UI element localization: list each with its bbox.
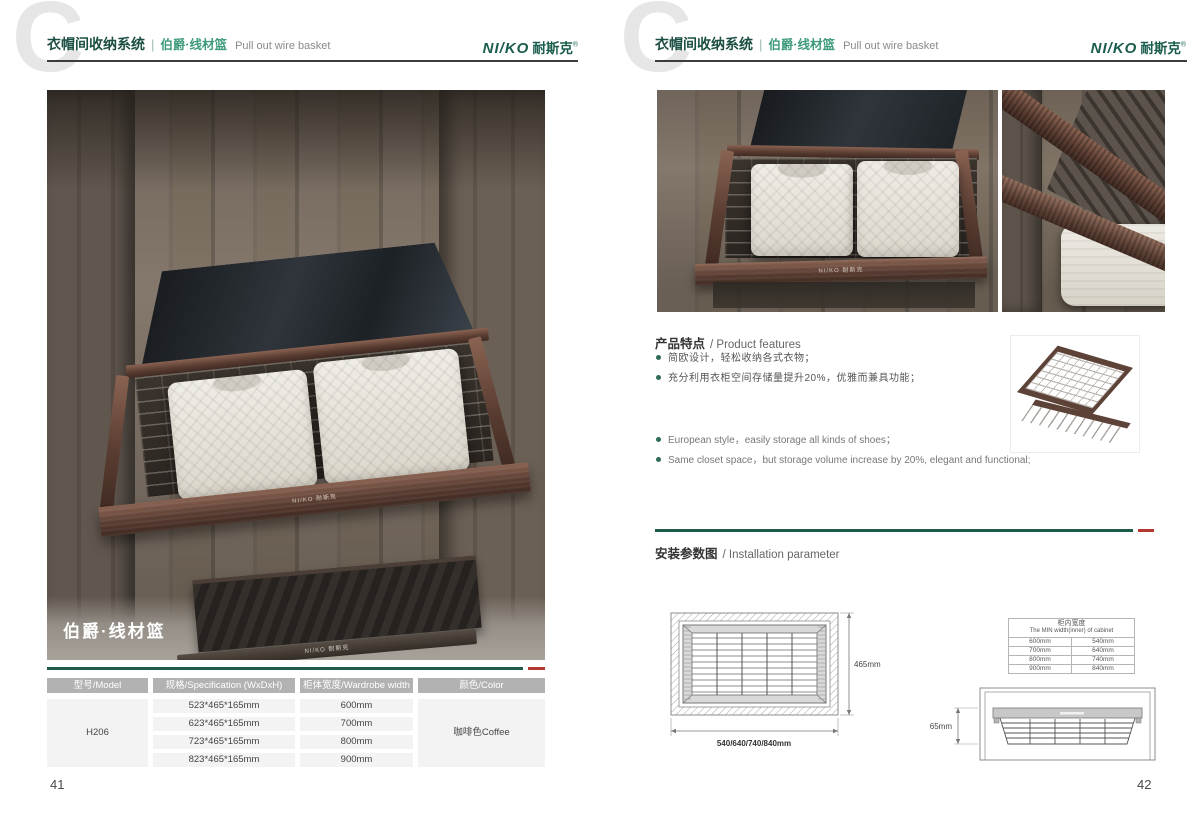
product-name-en: Pull out wire basket (235, 40, 330, 52)
col-header-width: 柜体宽度/Wardrobe width (300, 678, 413, 693)
depth-dimension-label: 465mm (854, 660, 881, 669)
installation-title-en: / Installation parameter (723, 549, 840, 561)
col-header-spec: 规格/Specification (WxDxH) (153, 678, 295, 693)
separator-green (47, 667, 523, 670)
table-title-zh: 柜内宽度 (1009, 620, 1134, 628)
shadow-overlay (47, 90, 545, 190)
registered-mark: ® (573, 42, 578, 49)
spec-table: 型号/Model 规格/Specification (WxDxH) 柜体宽度/W… (47, 678, 545, 767)
bullet-icon (656, 457, 661, 462)
title-divider: | (151, 37, 154, 52)
feature-item: 简欧设计，轻松收纳各式衣物； (655, 352, 995, 366)
separator-red (1138, 529, 1154, 532)
table-row: 700mm 640mm (1009, 646, 1135, 655)
wardrobe-photo: NI/KO 耐斯克 NI/KO 耐斯克 伯爵·线材篮 (47, 90, 545, 660)
page-title: 衣帽间收纳系统 (47, 36, 145, 52)
table-title-en: The MIN width(inner) of cabinet (1009, 628, 1134, 635)
installation-title: 安装参数图/ Installation parameter (655, 543, 840, 563)
separator-red (528, 667, 545, 670)
inner-width-cell: 640mm (1072, 646, 1135, 655)
page-number-right: 42 (1137, 777, 1151, 792)
col-header-model: 型号/Model (47, 678, 148, 693)
spec-cell: 523*465*165mm (153, 699, 295, 713)
header-right: 衣帽间收纳系统|伯爵·线材篮Pull out wire basket (655, 34, 938, 60)
installation-title-zh: 安装参数图 (655, 547, 718, 561)
features-title-en: / Product features (710, 339, 801, 351)
folded-sweater (857, 161, 959, 257)
min-width-table-header: 柜内宽度 The MIN width(inner) of cabinet (1009, 619, 1135, 638)
feature-item: 充分利用衣柜空间存储量提升20%，优雅而兼具功能； (655, 372, 995, 386)
model-cell: H206 (47, 699, 148, 767)
page-title: 衣帽间收纳系统 (655, 36, 753, 52)
width-cell: 900mm (300, 753, 413, 767)
basket-rim-left (99, 375, 129, 514)
features-title-zh: 产品特点 (655, 337, 705, 351)
inner-width-cell: 840mm (1072, 664, 1135, 673)
table-row: 900mm 840mm (1009, 664, 1135, 673)
spec-cell: 723*465*165mm (153, 735, 295, 749)
width-cell: 700mm (300, 717, 413, 731)
registered-mark: ® (1181, 42, 1186, 49)
logo-cn: 耐斯克 (1140, 41, 1181, 56)
brand-logo: NI/KO耐斯克® (460, 37, 578, 58)
feature-text: Same closet space，but storage volume inc… (668, 454, 1030, 468)
header-left: 衣帽间收纳系统|伯爵·线材篮Pull out wire basket (47, 34, 330, 60)
top-view-diagram: 465mm 540/640/740/840mm (658, 605, 893, 760)
feature-item: Same closet space，but storage volume inc… (655, 454, 1075, 468)
logo-latin: NI/KO (1091, 40, 1138, 57)
width-dimension-label: 540/640/740/840mm (717, 739, 791, 748)
wardrobe-width-cell: 600mm (1009, 637, 1072, 646)
inner-width-cell: 540mm (1072, 637, 1135, 646)
spec-table-header: 型号/Model 规格/Specification (WxDxH) 柜体宽度/W… (47, 678, 545, 693)
spec-cell: 623*465*165mm (153, 717, 295, 731)
product-name-zh: 伯爵·线材篮 (768, 38, 835, 52)
height-dimension-label: 165mm (930, 722, 952, 731)
bullet-icon (656, 355, 661, 360)
bullet-icon (656, 437, 661, 442)
separator-green (655, 529, 1133, 532)
width-cell: 800mm (300, 735, 413, 749)
product-name-zh: 伯爵·线材篮 (160, 38, 227, 52)
pull-out-basket: NI/KO 耐斯克 (61, 236, 532, 581)
header-rule-left (47, 60, 578, 62)
spec-table-body: H206 523*465*165mm 600mm 咖啡色Coffee 623*4… (47, 699, 545, 767)
col-header-color: 颜色/Color (418, 678, 545, 693)
table-row: 600mm 540mm (1009, 637, 1135, 646)
wardrobe-width-cell: 900mm (1009, 664, 1072, 673)
basket-closeup-photo: NI/KO 耐斯克 (657, 90, 998, 312)
folded-sweater (751, 164, 853, 256)
glass-top-panel (749, 90, 967, 152)
folded-sweater (167, 369, 319, 501)
feature-text: 充分利用衣柜空间存储量提升20%，优雅而兼具功能； (668, 372, 921, 386)
min-width-table: 柜内宽度 The MIN width(inner) of cabinet 600… (1008, 618, 1135, 674)
catalog-spread: C 衣帽间收纳系统|伯爵·线材篮Pull out wire basket NI/… (0, 0, 1200, 820)
logo-cn: 耐斯克 (532, 41, 573, 56)
logo-latin: NI/KO (483, 40, 530, 57)
inner-width-cell: 740mm (1072, 655, 1135, 664)
rail-brand-label: NI/KO 耐斯克 (695, 264, 987, 278)
wardrobe-width-cell: 700mm (1009, 646, 1072, 655)
features-list-zh: 简欧设计，轻松收纳各式衣物； 充分利用衣柜空间存储量提升20%，优雅而兼具功能； (655, 352, 995, 392)
features-title: 产品特点/ Product features (655, 333, 801, 353)
spec-cell: 823*465*165mm (153, 753, 295, 767)
table-row: 800mm 740mm (1009, 655, 1135, 664)
folded-sweater (312, 348, 470, 486)
basket-underside (713, 282, 975, 308)
brand-logo: NI/KO耐斯克® (1068, 37, 1186, 58)
photo-caption: 伯爵·线材篮 (63, 617, 166, 642)
header-rule-right (655, 60, 1187, 62)
features-list-en: European style，easily storage all kinds … (655, 434, 1075, 474)
frame-detail-photo (1002, 90, 1165, 312)
wardrobe-width-cell: 800mm (1009, 655, 1072, 664)
feature-text: European style，easily storage all kinds … (668, 434, 896, 448)
side-view-diagram: 165mm (930, 680, 1165, 768)
product-name-en: Pull out wire basket (843, 40, 938, 52)
bullet-icon (656, 375, 661, 380)
page-number-left: 41 (50, 777, 64, 792)
width-cell: 600mm (300, 699, 413, 713)
feature-text: 简欧设计，轻松收纳各式衣物； (668, 352, 815, 366)
feature-item: European style，easily storage all kinds … (655, 434, 1075, 448)
color-cell: 咖啡色Coffee (418, 699, 545, 767)
title-divider: | (759, 37, 762, 52)
